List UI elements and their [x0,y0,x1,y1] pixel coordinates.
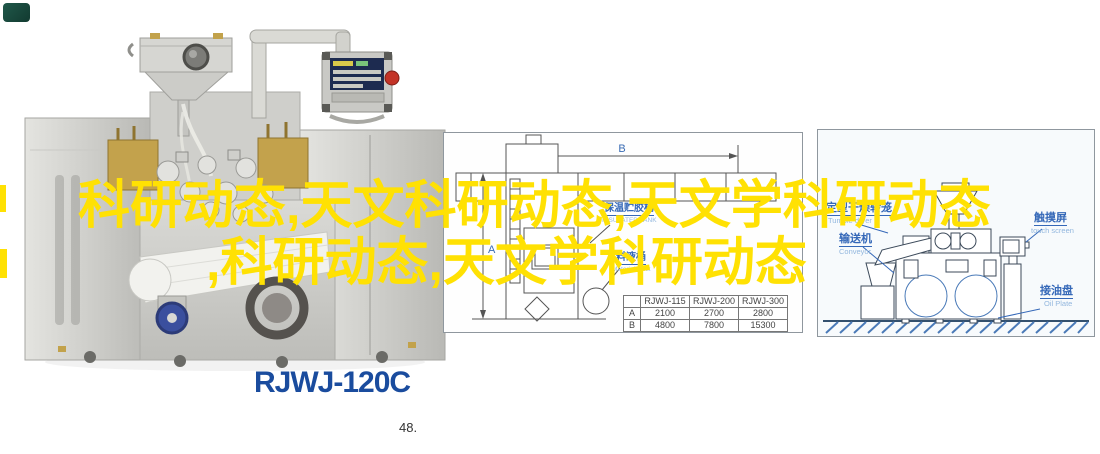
overlay-clipped-glyph-1 [0,185,6,212]
ground-hatching [823,321,1089,333]
touch-screen-label: 触摸屏 [1034,212,1067,226]
overlay-text-line1: 科研动态,天文科研动态,天文学科研动态 [78,179,991,233]
conveyor-label-en: Conveyor [839,248,871,256]
spec-table-header-row: RJWJ-115 RJWJ-200 RJWJ-300 [624,296,788,308]
page-number: 48. [399,420,417,435]
emergency-stop-button [385,71,399,85]
touch-screen-label-en: touch screen [1031,227,1074,235]
overlay-text-line2: ,科研动态,天文学科研动态 [206,236,807,290]
control-panel [322,52,399,122]
conveyor-label: 输送机 [839,233,872,247]
main-frame [896,253,1001,319]
model-label: RJWJ-120C [254,366,410,400]
touch-screen-monitor [1000,237,1029,319]
oil-plate-label: 接油盘 [1040,285,1073,299]
spec-table-row-b: B 4800 7800 15300 [624,320,788,332]
dim-b-label: B [618,143,625,155]
spec-table: RJWJ-115 RJWJ-200 RJWJ-300 A 2100 2700 2… [623,295,788,332]
spec-table-row-a: A 2100 2700 2800 [624,308,788,320]
motor [157,296,187,333]
catalog-page: RJWJ-120C B [0,0,1100,454]
overlay-clipped-glyph-2 [0,249,7,278]
oil-plate-label-en: Oil Plate [1044,300,1072,308]
